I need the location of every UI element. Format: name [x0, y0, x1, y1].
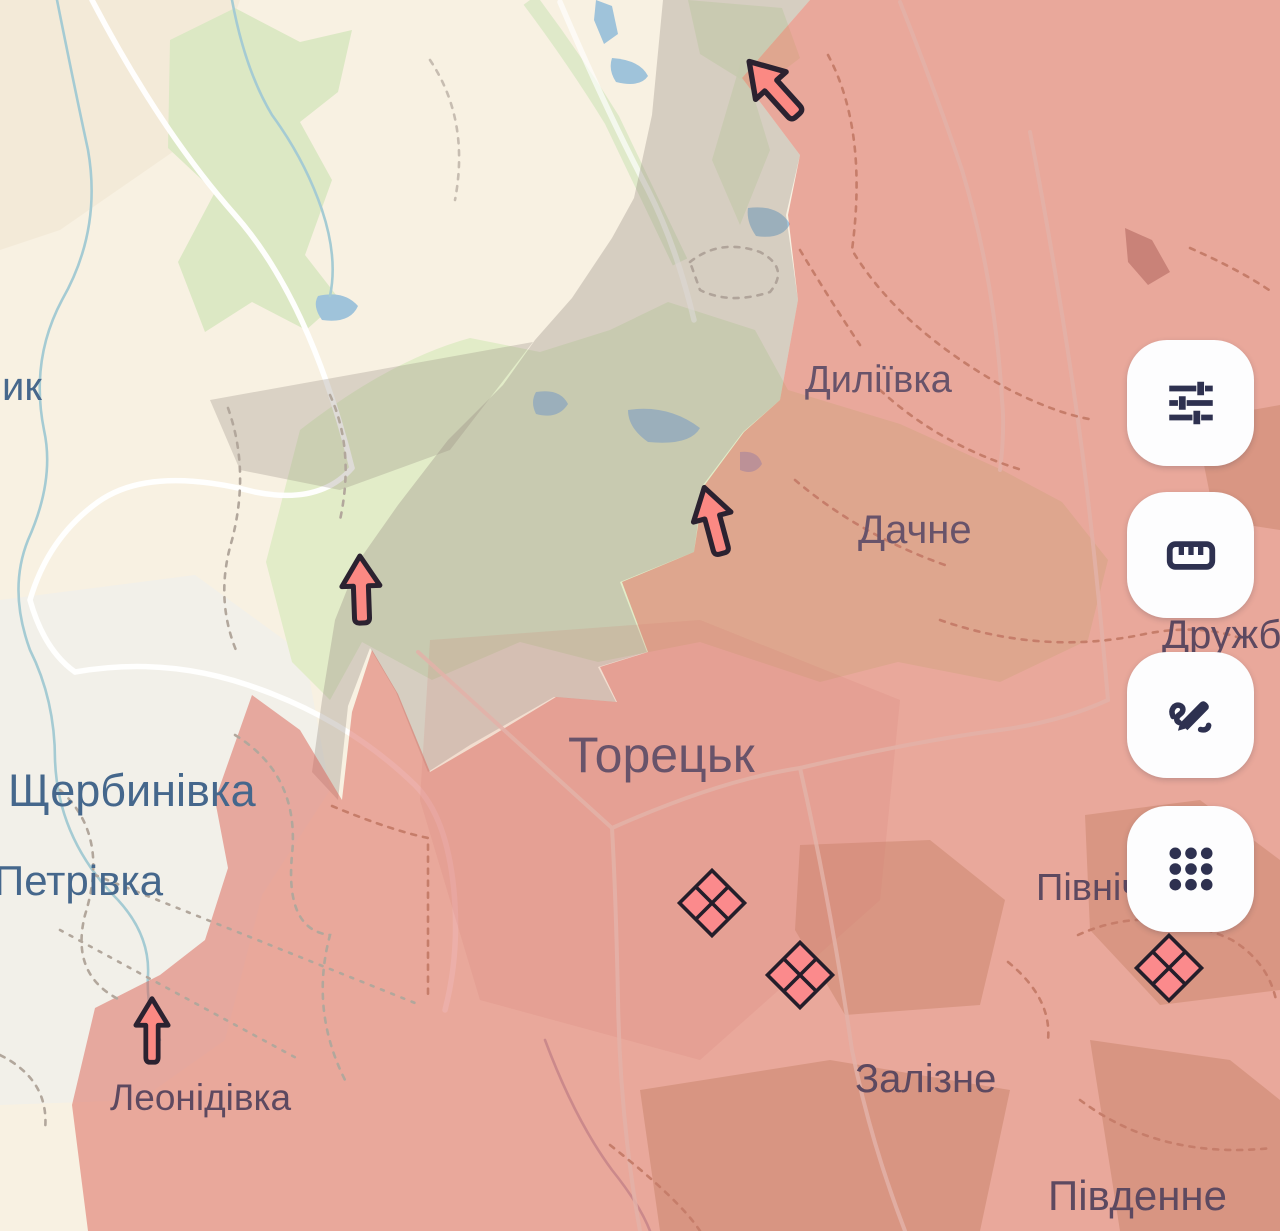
settlement-label-fragment: ик: [2, 365, 42, 409]
apps-button[interactable]: [1127, 806, 1254, 932]
measure-button[interactable]: [1127, 492, 1254, 618]
filters-button[interactable]: [1127, 340, 1254, 466]
map-app-window: ик Щербинівка Петрівка Леонідівка Торець…: [0, 0, 1280, 1231]
grid-dots-icon: [1162, 840, 1220, 898]
settlement-label-petrivka: Петрівка: [0, 857, 164, 904]
map-canvas[interactable]: ик Щербинівка Петрівка Леонідівка Торець…: [0, 0, 1280, 1231]
settlement-label-dyliivka: Диліївка: [805, 359, 953, 401]
draw-button[interactable]: [1127, 652, 1254, 778]
settlement-label-leonidivka: Леонідівка: [110, 1077, 292, 1118]
settlement-label-shcherbynivka: Щербинівка: [8, 765, 257, 816]
sliders-icon: [1162, 374, 1220, 432]
settlement-label-druzhba: Дружба: [1162, 613, 1280, 657]
pen-scribble-icon: [1162, 686, 1220, 744]
ruler-icon: [1162, 526, 1220, 584]
settlement-label-dachne: Дачне: [858, 508, 972, 552]
settlement-label-zalizne: Залізне: [855, 1057, 996, 1101]
settlement-label-toretsk: Торецьк: [568, 727, 756, 783]
settlement-label-pivdenne: Південне: [1048, 1172, 1227, 1219]
